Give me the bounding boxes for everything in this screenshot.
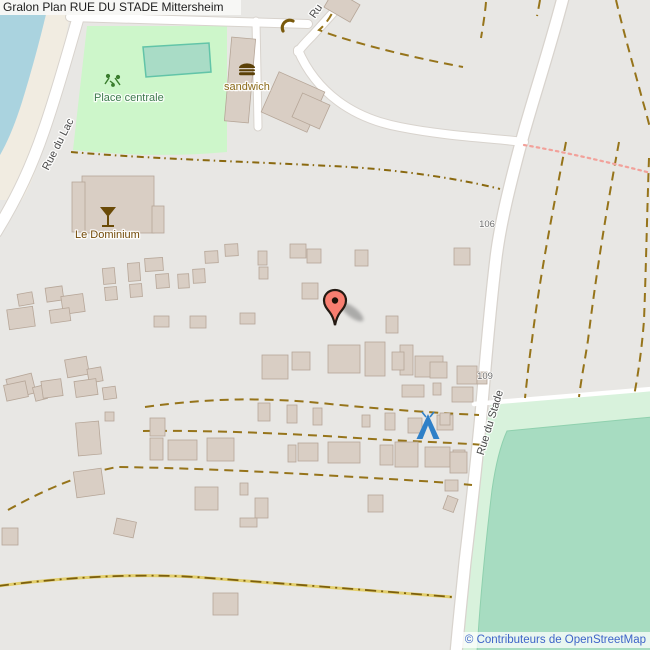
- building: [445, 480, 458, 491]
- building: [127, 263, 140, 282]
- building: [150, 438, 163, 460]
- building: [259, 267, 268, 279]
- building: [425, 447, 450, 467]
- building: [450, 452, 467, 473]
- building: [102, 386, 117, 400]
- building: [150, 418, 165, 436]
- building: [102, 268, 115, 285]
- building: [213, 593, 238, 615]
- building: [2, 528, 18, 545]
- building: [7, 306, 36, 329]
- building: [258, 403, 270, 421]
- building: [255, 498, 268, 518]
- building: [76, 421, 102, 456]
- building: [440, 413, 450, 425]
- building: [152, 206, 164, 233]
- building: [205, 251, 219, 264]
- building: [302, 283, 318, 299]
- building: [457, 366, 477, 384]
- building: [190, 316, 206, 328]
- building: [454, 248, 470, 265]
- building: [287, 405, 297, 423]
- building: [195, 487, 218, 510]
- building: [395, 442, 418, 467]
- housenumber-106: 106: [479, 219, 495, 230]
- building: [82, 176, 154, 233]
- building: [380, 445, 393, 465]
- building: [368, 495, 383, 512]
- building: [386, 316, 398, 333]
- building: [130, 284, 143, 298]
- building: [41, 379, 63, 399]
- building: [240, 483, 248, 495]
- housenumber-109: 109: [477, 371, 493, 382]
- building: [240, 313, 255, 324]
- building: [402, 385, 424, 397]
- sports-field-pitch: [477, 417, 650, 650]
- building: [290, 244, 306, 258]
- building: [17, 292, 34, 306]
- building: [65, 356, 90, 378]
- building: [288, 445, 296, 462]
- building: [104, 287, 117, 301]
- building: [258, 251, 267, 265]
- building: [73, 468, 104, 498]
- building: [307, 249, 321, 263]
- page-title: Gralon Plan RUE DU STADE Mittersheim: [0, 0, 241, 15]
- building: [392, 352, 404, 370]
- building: [313, 408, 322, 425]
- bar-label: Le Dominium: [75, 229, 140, 241]
- building: [452, 387, 473, 402]
- building: [433, 383, 441, 395]
- park-label: Place centrale: [94, 92, 164, 104]
- building: [72, 182, 85, 232]
- building: [225, 244, 239, 257]
- building: [355, 250, 368, 266]
- building: [207, 438, 234, 461]
- building: [292, 352, 310, 370]
- building: [178, 274, 190, 289]
- building: [328, 345, 360, 373]
- map-pin-dot: [332, 297, 338, 303]
- building: [430, 362, 447, 378]
- building: [145, 257, 164, 271]
- building: [154, 316, 169, 327]
- building: [365, 342, 385, 376]
- attribution-bar: © Contributeurs de OpenStreetMap: [459, 632, 650, 648]
- map-canvas[interactable]: Place centrale sandwich Le Dominium Rue …: [0, 0, 650, 650]
- building: [168, 440, 197, 460]
- building: [240, 518, 257, 527]
- building: [156, 274, 170, 289]
- building: [408, 418, 422, 433]
- park-pitch: [143, 43, 211, 77]
- burger-icon: [239, 63, 255, 75]
- building: [362, 415, 370, 427]
- building: [328, 442, 360, 463]
- building: [74, 379, 98, 398]
- building: [298, 443, 318, 461]
- building: [105, 412, 114, 421]
- building: [49, 308, 71, 324]
- osm-attribution-link[interactable]: © Contributeurs de OpenStreetMap: [465, 634, 646, 646]
- building: [262, 355, 288, 379]
- building: [193, 269, 206, 284]
- fast-food-label: sandwich: [224, 81, 270, 93]
- road-stub: [256, 21, 258, 127]
- building: [385, 413, 395, 430]
